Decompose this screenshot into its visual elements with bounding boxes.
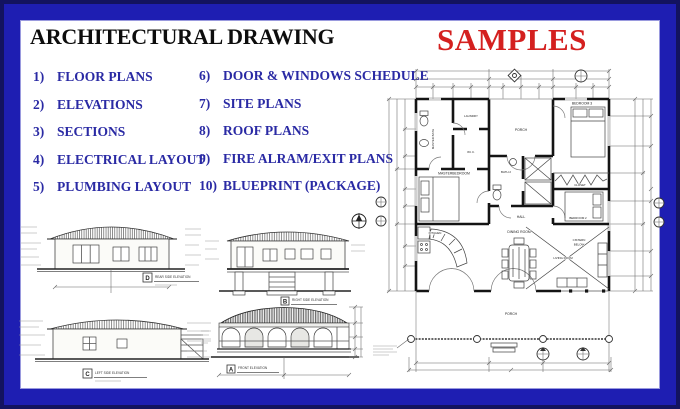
dimension-lines — [387, 69, 653, 372]
floor-plan-drawing: MASTER BATH LAUNDRY W.I.C. PORCH BEDROOM… — [371, 61, 669, 379]
eave-band — [219, 323, 349, 327]
drawing-label: C LEFT SIDE ELEVATION — [83, 369, 147, 381]
elevation-rear-drawing: D REAR SIDE ELEVATION — [17, 199, 205, 303]
list-item: 4)ELECTRICAL LAYOUT — [33, 152, 205, 168]
elevation-tag: A — [229, 368, 234, 374]
item-number: 5) — [33, 179, 53, 195]
room-label-master-bedroom: MASTERBEDROOM — [438, 172, 470, 176]
item-label: ELECTRICAL LAYOUT — [57, 152, 205, 167]
item-label: ELEVATIONS — [57, 97, 143, 112]
drawing-label: A FRONT ELEVATION — [227, 365, 279, 374]
roof — [221, 308, 347, 324]
item-number: 4) — [33, 152, 53, 168]
room-label-bedroom2: BEDROOM 2 — [569, 216, 587, 220]
elevation-caption: REAR SIDE ELEVATION — [155, 275, 191, 279]
room-label-porch-top: PORCH — [515, 128, 528, 132]
page-title: ARCHITECTURAL DRAWING — [30, 24, 334, 50]
room-label-hall: HALL — [517, 215, 526, 219]
item-number: 7) — [199, 96, 219, 112]
thin-details — [489, 99, 609, 293]
drawing-label: D REAR SIDE ELEVATION — [143, 273, 199, 285]
item-label: SECTIONS — [57, 124, 125, 139]
list-item: 1)FLOOR PLANS — [33, 69, 205, 85]
flyer-card: ARCHITECTURAL DRAWING SAMPLES 1)FLOOR PL… — [0, 0, 680, 409]
furniture — [418, 107, 607, 288]
room-label-bath2: BATH 2 — [501, 170, 511, 174]
item-label: BLUEPRINT (PACKAGE) — [223, 178, 380, 193]
item-number: 10) — [199, 178, 219, 194]
elevation-caption: LEFT SIDE ELEVATION — [95, 371, 130, 375]
elevation-tag: D — [145, 276, 150, 282]
porch-details — [373, 291, 613, 360]
item-label: FIRE ALRAM/EXIT PLANS — [223, 151, 393, 166]
room-label-dining: DINING ROOM — [507, 230, 531, 234]
piers — [235, 272, 333, 291]
samples-heading: SAMPLES — [437, 22, 587, 58]
item-number: 2) — [33, 97, 53, 113]
elevation-left-drawing: C LEFT SIDE ELEVATION — [17, 297, 215, 393]
room-label-master-bath: MASTER BATH — [431, 129, 435, 149]
annotations-left — [205, 241, 219, 259]
elevation-caption: FRONT ELEVATION — [238, 366, 268, 370]
services-column-1: 1)FLOOR PLANS 2)ELEVATIONS 3)SECTIONS 4)… — [33, 69, 205, 195]
walls — [416, 99, 609, 291]
roof — [227, 232, 349, 241]
list-item: 2)ELEVATIONS — [33, 97, 205, 113]
item-label: PLUMBING LAYOUT — [57, 179, 191, 194]
item-label: FLOOR PLANS — [57, 69, 153, 84]
list-item: 5)PLUMBING LAYOUT — [33, 179, 205, 195]
room-label-porch-bottom: PORCH — [505, 312, 518, 316]
room-labels: MASTER BATH LAUNDRY W.I.C. PORCH BEDROOM… — [429, 102, 593, 317]
item-number: 6) — [199, 68, 219, 84]
item-number: 1) — [33, 69, 53, 85]
window-lines — [415, 98, 610, 276]
annotations-right — [351, 245, 365, 251]
room-label-living: LIVING ROOM — [553, 256, 573, 260]
list-item: 3)SECTIONS — [33, 124, 205, 140]
room-label-wic: W.I.C. — [467, 150, 475, 154]
content-area: ARCHITECTURAL DRAWING SAMPLES 1)FLOOR PL… — [20, 20, 660, 389]
item-label: SITE PLANS — [223, 96, 301, 111]
elevation-tag: C — [85, 372, 90, 378]
item-number: 3) — [33, 124, 53, 140]
annotations-left — [19, 321, 45, 355]
room-label-closet: CLOSET — [574, 183, 586, 187]
room-label-kitchen: KITCHEN — [429, 231, 442, 235]
annotations-left — [201, 331, 211, 343]
item-label: ROOF PLANS — [223, 123, 309, 138]
item-number: 9) — [199, 151, 219, 167]
item-number: 8) — [199, 123, 219, 139]
elevation-front-drawing: A FRONT ELEVATION — [199, 297, 371, 393]
room-label-cistern-2: BELOW — [574, 243, 585, 247]
room-label-bedroom3: BEDROOM 3 — [572, 102, 592, 106]
elevation-right-drawing: B RIGHT SIDE ELEVATION — [199, 211, 371, 309]
room-label-cistern-1: CISTERN — [573, 238, 586, 242]
roof — [50, 320, 184, 329]
windows — [73, 245, 157, 263]
annotations-left — [21, 227, 41, 265]
arched-porch — [219, 327, 349, 349]
room-label-laundry: LAUNDRY — [464, 114, 478, 118]
roof — [50, 227, 174, 239]
